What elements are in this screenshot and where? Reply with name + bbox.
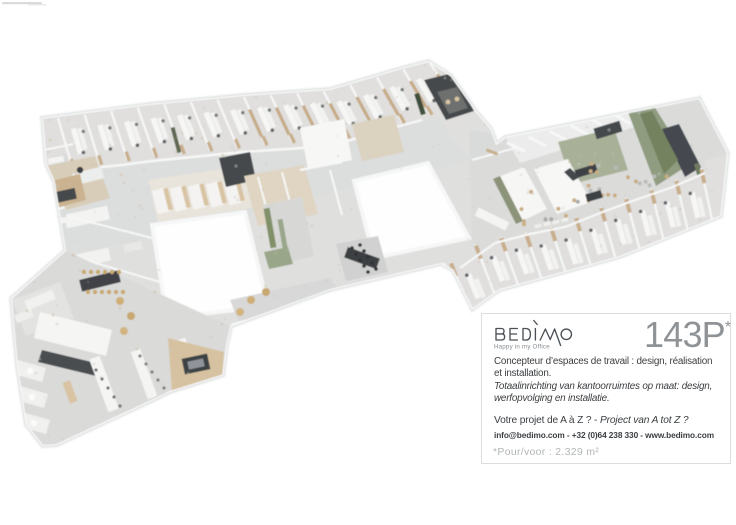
svg-text:Happy in my Office: Happy in my Office — [494, 344, 550, 351]
